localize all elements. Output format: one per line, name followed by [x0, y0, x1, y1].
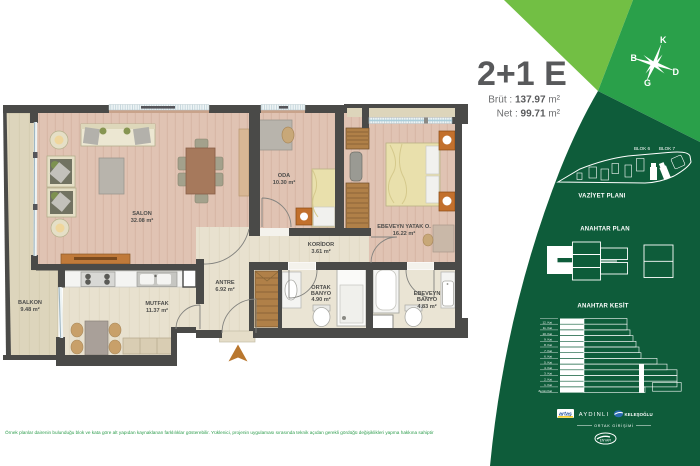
- svg-text:11. Kat: 11. Kat: [543, 326, 552, 330]
- svg-text:4.90 m²: 4.90 m²: [311, 296, 330, 303]
- svg-text:D: D: [673, 67, 680, 77]
- svg-text:3.61 m²: 3.61 m²: [311, 248, 330, 255]
- svg-text:EBEVEYN YATAK O.: EBEVEYN YATAK O.: [377, 224, 431, 230]
- svg-text:BLOK 6: BLOK 6: [634, 146, 651, 151]
- svg-text:12. Kat: 12. Kat: [542, 320, 552, 324]
- svg-text:BLOK 7: BLOK 7: [659, 146, 676, 151]
- svg-text:10. Kat: 10. Kat: [542, 332, 552, 336]
- svg-text:ANTRE: ANTRE: [215, 280, 235, 286]
- svg-text:11.37 m²: 11.37 m²: [146, 307, 168, 314]
- svg-text:16.22 m²: 16.22 m²: [393, 230, 416, 237]
- svg-text:G: G: [644, 78, 651, 88]
- svg-text:8. Kat: 8. Kat: [544, 343, 552, 347]
- svg-text:4. Kat: 4. Kat: [544, 366, 552, 370]
- svg-text:2. Kat: 2. Kat: [544, 377, 552, 381]
- svg-text:MUTFAK: MUTFAK: [145, 301, 168, 307]
- svg-text:5. Kat: 5. Kat: [544, 360, 552, 364]
- svg-text:9. Kat: 9. Kat: [544, 338, 552, 342]
- svg-text:B: B: [631, 53, 638, 63]
- svg-text:Net : 99.71 m²: Net : 99.71 m²: [497, 109, 561, 120]
- svg-text:K: K: [660, 35, 667, 45]
- svg-text:6.92 m²: 6.92 m²: [215, 286, 234, 293]
- svg-text:Örnek planlar dairenin bulundu: Örnek planlar dairenin bulunduğu blok ve…: [5, 429, 434, 435]
- svg-text:VAZİYET PLANI: VAZİYET PLANI: [578, 193, 625, 200]
- svg-text:ANAHTAR PLAN: ANAHTAR PLAN: [580, 227, 630, 233]
- svg-text:KELEŞOĞLU: KELEŞOĞLU: [625, 412, 653, 417]
- svg-text:3. Kat: 3. Kat: [544, 372, 552, 376]
- svg-text:ANAHTAR KESİT: ANAHTAR KESİT: [577, 303, 628, 310]
- svg-text:Zemin Kat: Zemin Kat: [538, 389, 552, 393]
- svg-text:ODA: ODA: [278, 173, 290, 179]
- svg-text:6. Kat: 6. Kat: [544, 355, 552, 359]
- svg-text:1. Kat: 1. Kat: [544, 383, 552, 387]
- svg-text:KORİDOR: KORİDOR: [308, 241, 334, 248]
- svg-text:7. Kat: 7. Kat: [544, 349, 552, 353]
- svg-text:AYDINLI: AYDINLI: [579, 412, 610, 418]
- svg-text:ENYAPI: ENYAPI: [600, 439, 612, 443]
- svg-text:BALKON: BALKON: [18, 300, 42, 306]
- svg-text:10.30 m²: 10.30 m²: [273, 179, 296, 186]
- svg-text:2+1 E: 2+1 E: [477, 55, 567, 93]
- svg-text:4.83 m²: 4.83 m²: [417, 303, 436, 310]
- svg-text:ORTAK GİRİŞİMİ: ORTAK GİRİŞİMİ: [594, 423, 634, 428]
- svg-text:BANYO: BANYO: [417, 297, 438, 303]
- svg-text:SALON: SALON: [132, 211, 152, 217]
- svg-text:Brüt : 137.97 m²: Brüt : 137.97 m²: [488, 95, 560, 106]
- svg-text:9.48 m²: 9.48 m²: [20, 306, 39, 313]
- svg-text:32.08 m²: 32.08 m²: [131, 217, 154, 224]
